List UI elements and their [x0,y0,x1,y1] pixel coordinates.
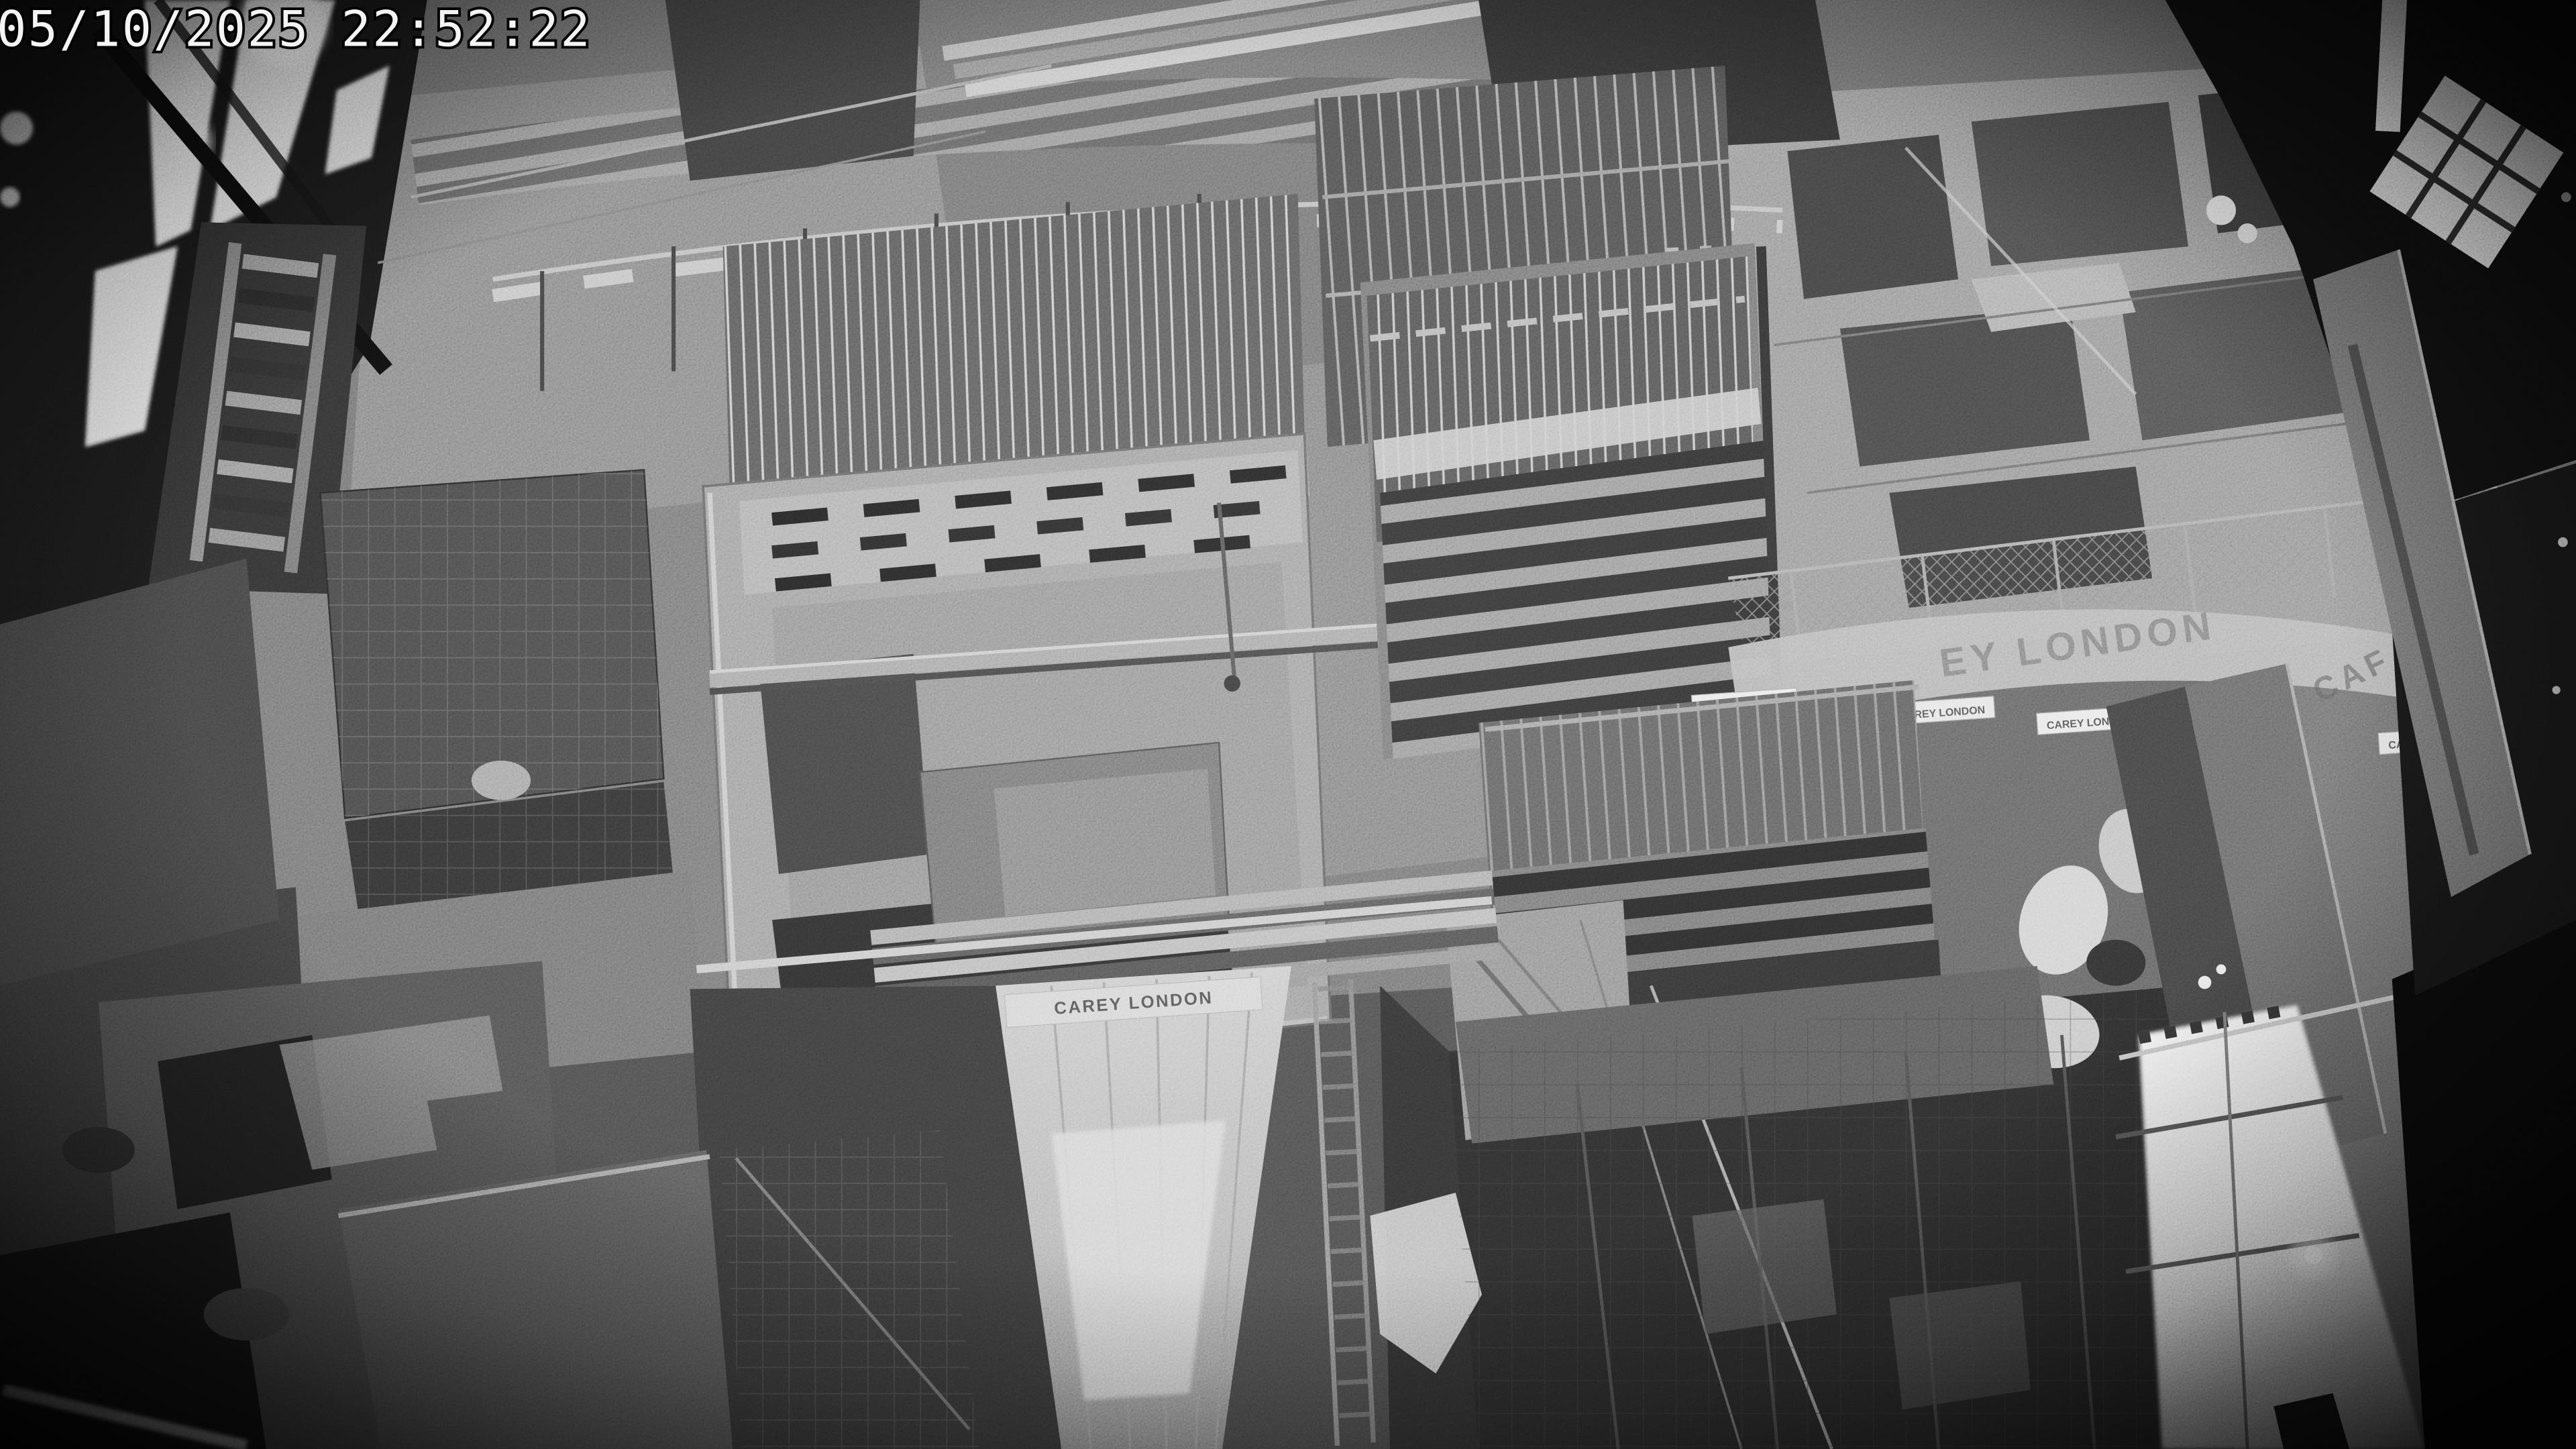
cctv-frame: EY LONDON CAF CAREY LONDON CAREY LONDON … [0,0,2576,1449]
construction-site-night-photo: EY LONDON CAF CAREY LONDON CAREY LONDON … [0,0,2576,1449]
timestamp-overlay: 05/10/2025 22:52:22 [0,1,592,58]
sensor-grain [0,0,2576,1449]
